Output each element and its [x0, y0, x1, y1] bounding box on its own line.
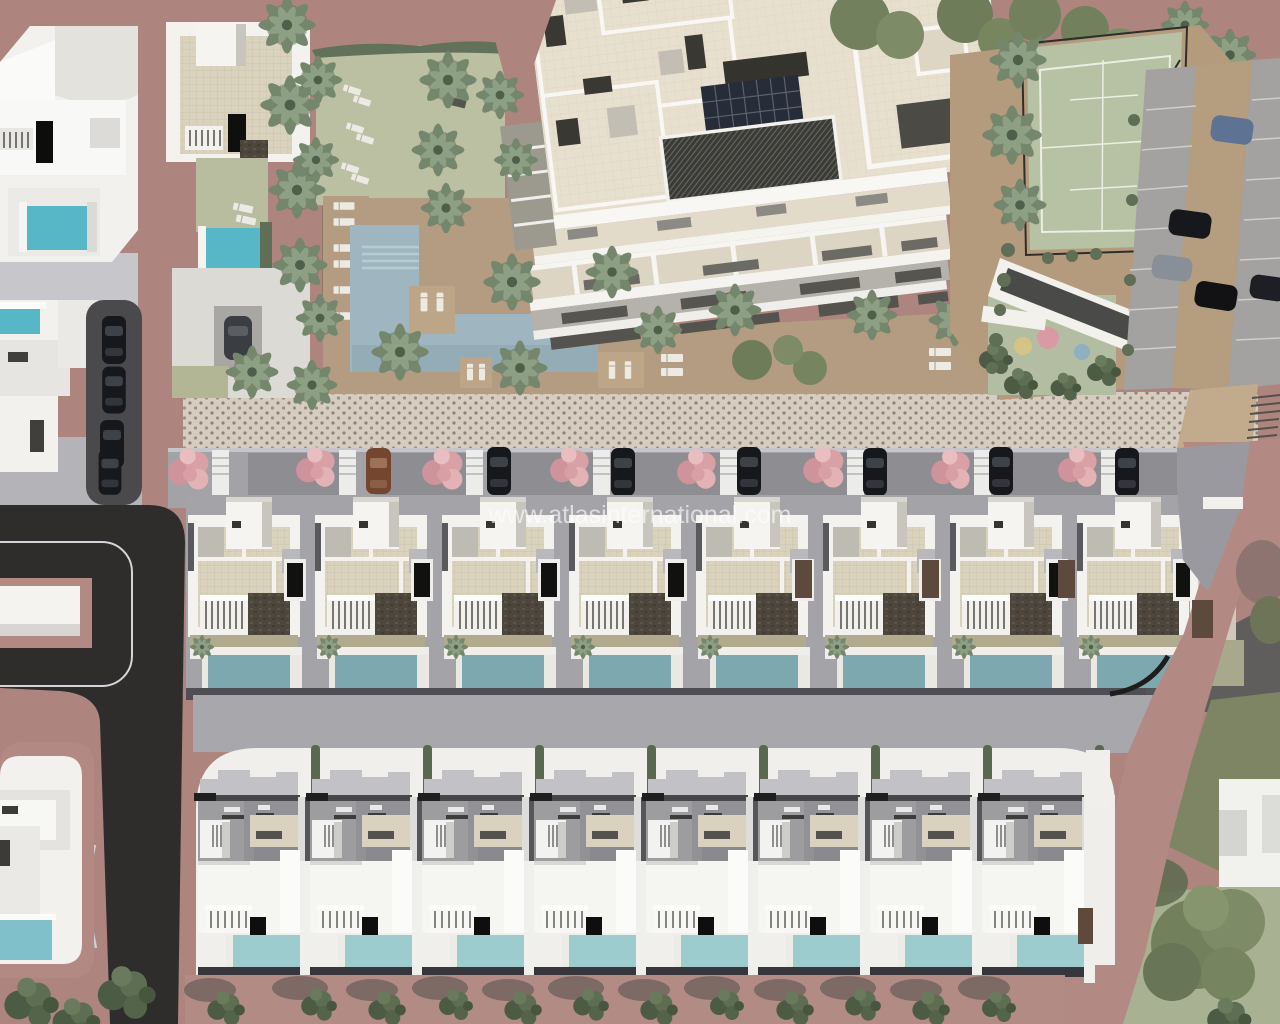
svg-text:www.atlasinternational.com: www.atlasinternational.com	[488, 501, 792, 529]
